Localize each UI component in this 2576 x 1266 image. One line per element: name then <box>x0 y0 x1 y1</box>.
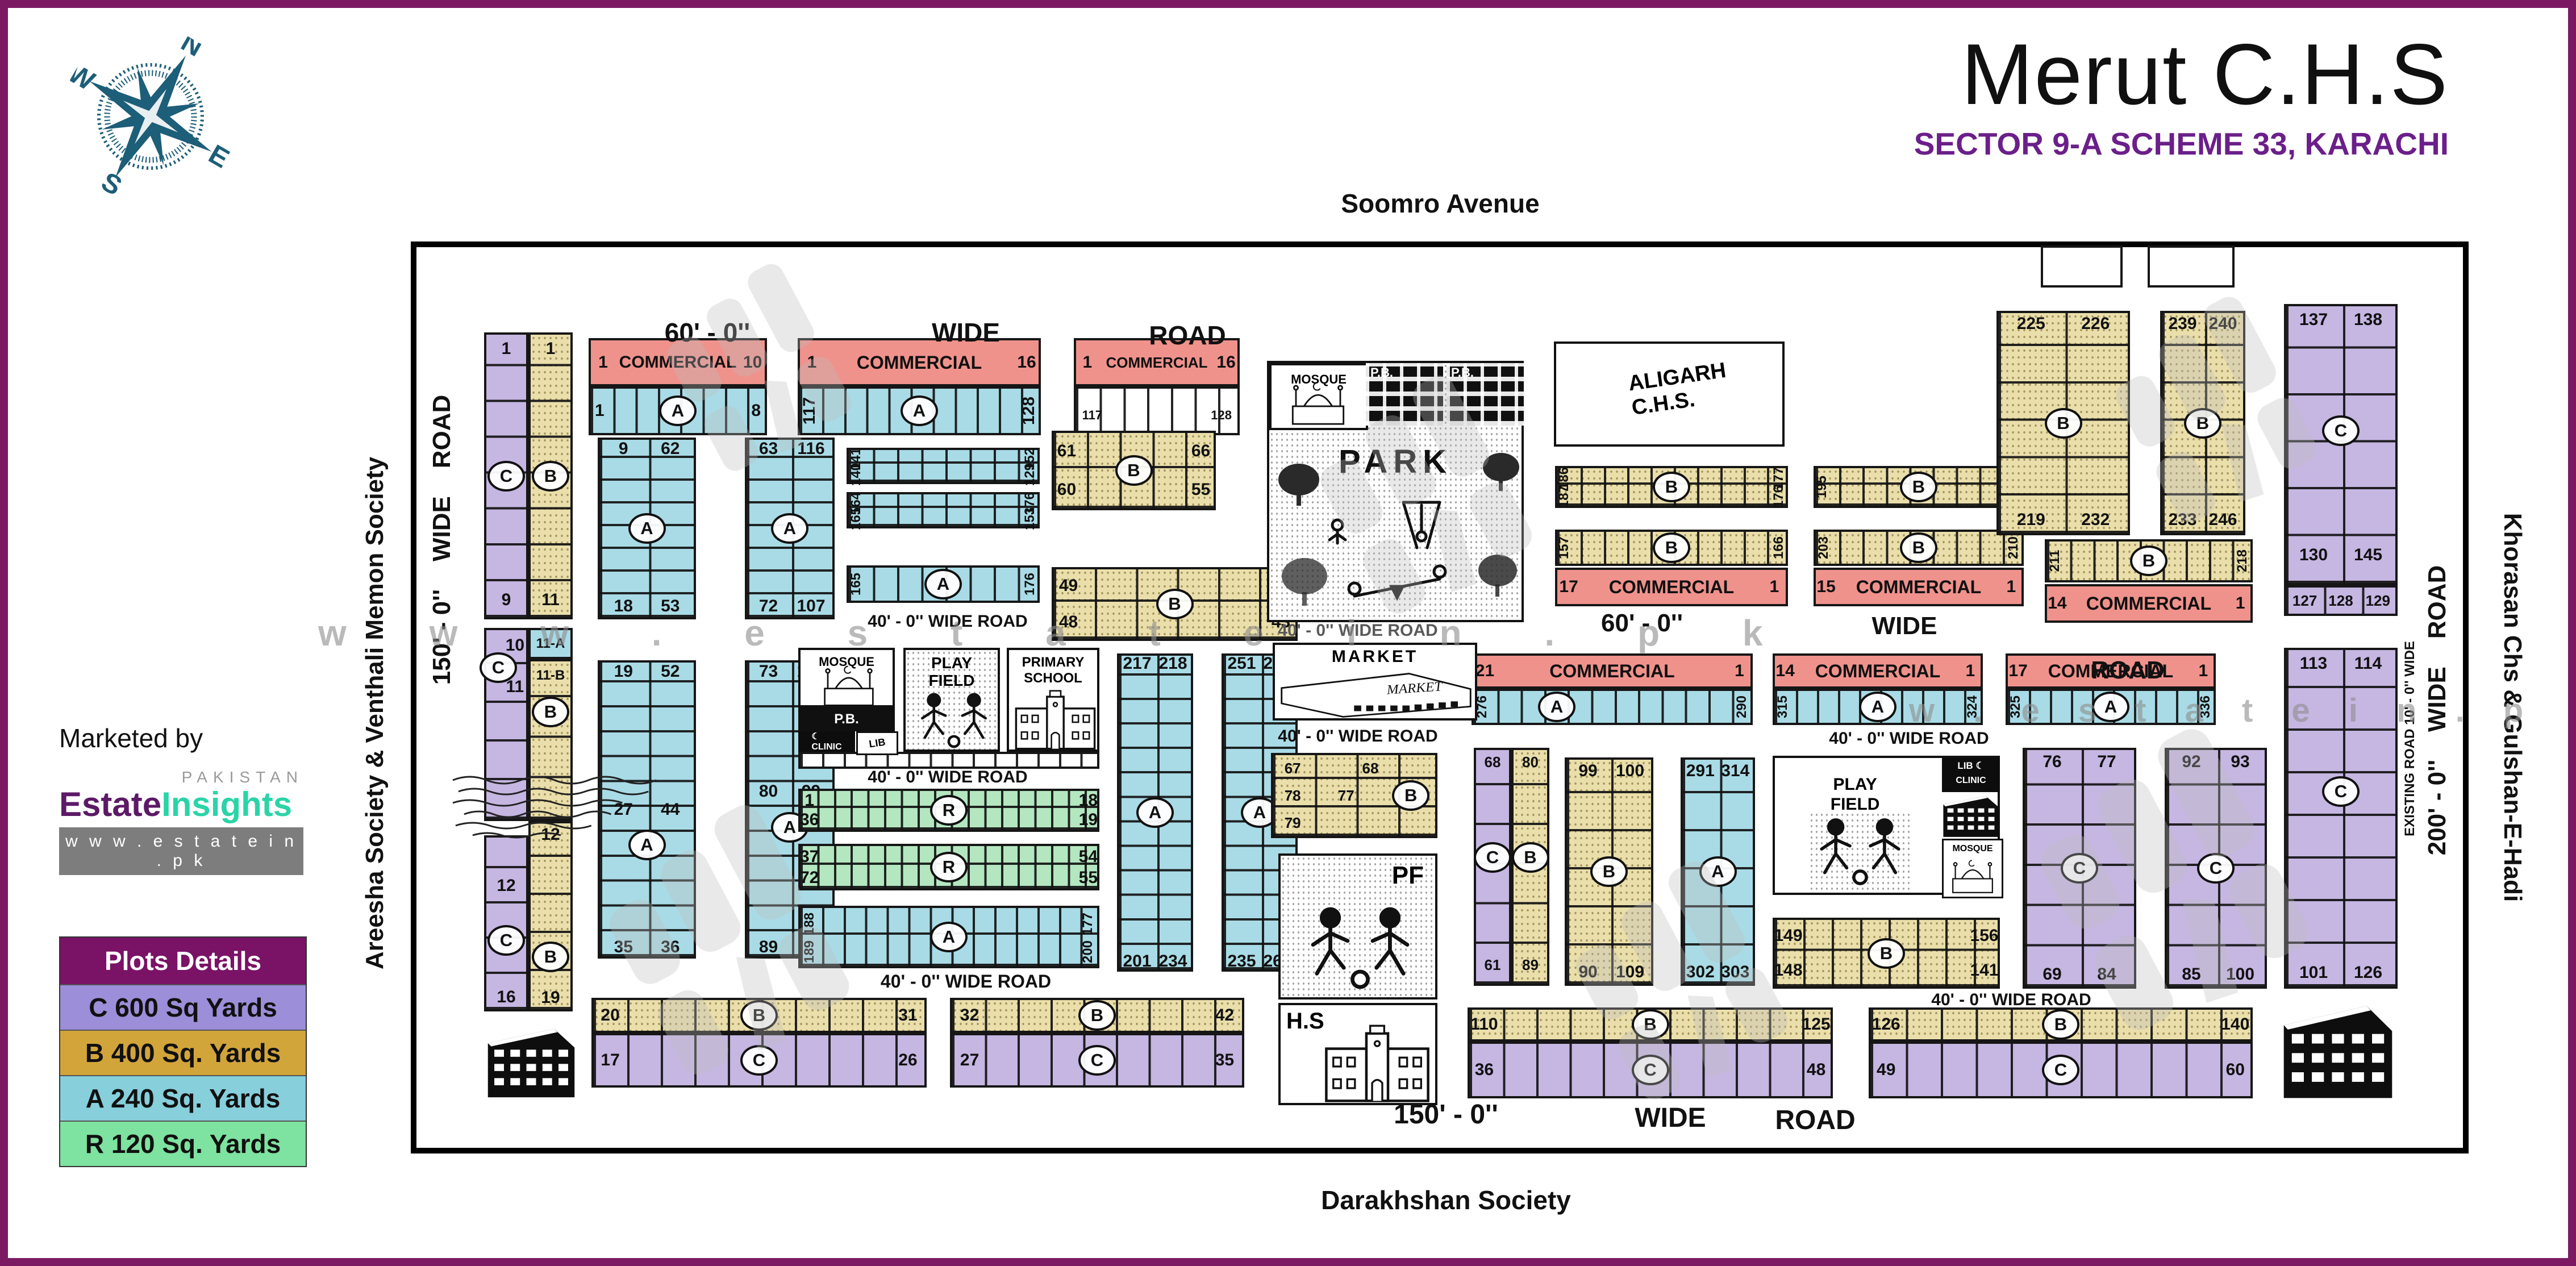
hs-label: H.S <box>1286 1009 1324 1034</box>
marketed-by-label: Marketed by <box>59 723 303 753</box>
plot-number: 12 <box>497 877 515 894</box>
plot-block-c: 6861C <box>1474 748 1511 986</box>
plot-block-b: 157166B <box>1555 530 1788 566</box>
school-label: PRIMARY SCHOOL <box>1011 655 1095 686</box>
clinic-box: ☾ CLINIC <box>798 731 855 752</box>
road-label: WIDE <box>1872 614 1937 639</box>
plot-number: 11 <box>506 678 524 696</box>
pb-label: P.B. <box>834 711 859 727</box>
plot-number: 126 <box>2354 964 2382 981</box>
terrain-contours <box>450 772 676 843</box>
plot-number: 18 <box>1079 792 1098 809</box>
road-label: ROAD <box>2091 658 2165 683</box>
legend-header: Plots Details <box>60 938 306 984</box>
building-icon <box>486 1025 577 1098</box>
brand-url: w w w . e s t a t e i n . p k <box>59 827 303 875</box>
plot-block-b: 3242B <box>950 998 1244 1033</box>
footballers-icon <box>1809 812 1911 892</box>
plot-number: 1 <box>1083 354 1093 371</box>
plot-category-badge-c: C <box>1078 1045 1116 1076</box>
plot-category-badge-r: R <box>930 795 968 826</box>
plot-number: 127 <box>2292 593 2317 608</box>
plot-number: 16 <box>497 989 515 1006</box>
label-soomro-avenue: Soomro Avenue <box>1341 188 1539 219</box>
plot-category-badge-b: B <box>1115 455 1153 486</box>
plot-number: 1 <box>595 402 605 419</box>
plot-block-a: 9621853A <box>598 438 696 619</box>
plot-category-badge-b: B <box>1900 472 1937 502</box>
plot-number: 78 <box>1285 788 1301 803</box>
plot-number: 291 <box>1686 763 1715 780</box>
footballers-icon <box>911 690 997 751</box>
plot-number: 52 <box>661 663 680 680</box>
plot-block-b: 1219B <box>528 821 573 1011</box>
plot-number: 129 <box>1023 463 1037 486</box>
plot-block-w <box>2148 245 2235 288</box>
legend-row: A 240 Sq. Yards <box>60 1075 306 1121</box>
label-areesha-society: Areesha Society & Venthali Memon Society <box>361 457 389 969</box>
plot-block-r: 1183619R <box>798 789 1099 832</box>
plot-number: COMMERCIAL <box>1609 578 1734 596</box>
landmark-pb: P.B. <box>798 707 895 731</box>
plot-block-com: 15COMMERCIAL1 <box>1814 568 2024 606</box>
mosque-icon <box>804 665 894 707</box>
road-label: 40' - 0'' WIDE ROAD <box>1931 992 2091 1009</box>
plot-number: COMMERCIAL <box>2086 594 2211 613</box>
plot-number: 232 <box>2081 511 2110 528</box>
plot-category-badge-a: A <box>1538 692 1575 722</box>
plot-number: 1 <box>805 792 814 809</box>
page-subtitle: SECTOR 9-A SCHEME 33, KARACHI <box>1914 126 2449 162</box>
footballers-icon <box>1298 901 1423 995</box>
aligarh-label: ALIGARH C.H.S. <box>1627 358 1734 420</box>
plot-number: 114 <box>2354 655 2382 672</box>
clinic-label: ☾ CLINIC <box>811 731 841 752</box>
brand-country: PAKISTAN <box>59 768 303 786</box>
road-label: 40' - 0'' WIDE ROAD <box>881 972 1051 990</box>
plot-block-b: 211218B <box>2045 539 2253 582</box>
plot-number: 16 <box>1216 354 1235 371</box>
plot-number: 73 <box>759 663 778 680</box>
mosque-icon <box>1275 381 1361 426</box>
road-label: WIDE <box>932 319 1000 345</box>
plot-category-badge-b: B <box>2045 408 2082 439</box>
plot-number: 225 <box>2017 315 2045 332</box>
plot-category-badge-b: B <box>532 697 569 727</box>
plot-number: 165 <box>849 573 863 595</box>
plot-number: 128 <box>1020 397 1037 425</box>
svg-text:W: W <box>62 57 99 96</box>
plot-category-badge-b: B <box>2130 545 2167 576</box>
plot-number: 99 <box>1578 763 1597 780</box>
plot-number: 1 <box>502 340 511 357</box>
plot-number: 218 <box>1158 655 1187 672</box>
plot-block-b: 6768787779B <box>1271 753 1437 838</box>
plot-number: 11 <box>541 592 560 609</box>
plot-category-badge-a: A <box>1859 692 1896 722</box>
plots-details-legend: Plots Details C 600 Sq YardsB 400 Sq. Ya… <box>59 936 307 1167</box>
plot-number: 54 <box>1079 848 1098 865</box>
plot-number: 89 <box>1522 957 1539 972</box>
building-icon <box>1942 793 2000 838</box>
plot-block-a: 276290A <box>1472 689 1753 725</box>
plot-number: 211 <box>2048 550 2062 572</box>
plot-number: 166 <box>1772 536 1786 559</box>
plot-block-com: 17COMMERCIAL1 <box>1555 568 1788 606</box>
plot-number: 9 <box>502 592 511 609</box>
plot-number: 314 <box>1721 763 1749 780</box>
plot-number: 31 <box>898 1007 917 1024</box>
plot-number: 1 <box>1735 663 1744 680</box>
plot-number: COMMERCIAL <box>1815 662 1940 680</box>
plot-number: 176 <box>1023 573 1037 595</box>
plot-number: COMMERCIAL <box>1549 662 1674 680</box>
plot-number: 276 <box>1475 696 1489 718</box>
plot-number: 20 <box>601 1007 619 1024</box>
road-label: ROAD <box>1149 322 1226 348</box>
plot-number: 55 <box>1191 481 1210 498</box>
brand-estate: Estate <box>59 785 161 823</box>
plot-number: 1 <box>598 354 608 371</box>
plot-category-badge-b: B <box>2042 1009 2079 1040</box>
plot-category-badge-a: A <box>930 922 968 952</box>
plot-number: 79 <box>1285 815 1301 830</box>
plot-category-badge-b: B <box>1653 472 1690 502</box>
plot-block-c: 2735C <box>950 1033 1244 1088</box>
plot-number: 1 <box>1770 578 1779 595</box>
plot-number: 77 <box>1338 788 1354 803</box>
plot-category-badge-b: B <box>1512 842 1549 873</box>
plot-number: 251 <box>1227 655 1256 672</box>
plot-number: 15 <box>1816 578 1835 595</box>
playfield-label: PLAY FIELD <box>1811 775 1900 814</box>
clinic-label: CLINIC <box>1956 776 1986 786</box>
plot-number: 128 <box>2328 593 2353 608</box>
plot-number: 1 <box>1966 663 1975 680</box>
plot-number: 1 <box>546 340 556 357</box>
plot-category-badge-a: A <box>901 395 938 426</box>
legend-row: R 120 Sq. Yards <box>60 1121 306 1166</box>
plot-category-badge-b: B <box>532 461 569 492</box>
plot-number: 165 <box>849 507 863 530</box>
plot-block-w <box>2041 245 2123 288</box>
plot-number: 110 <box>1470 1016 1498 1033</box>
plot-number: 67 <box>1285 761 1301 776</box>
plot-block-b: 61666055B <box>1052 431 1216 510</box>
page-title: Merut C.H.S <box>1914 27 2449 122</box>
plot-block-w: 117128 <box>1074 386 1240 435</box>
lib-box: LIB <box>856 731 898 755</box>
landmark-aligarh: ALIGARH C.H.S. <box>1554 342 1785 447</box>
plot-number: COMMERCIAL <box>1856 578 1981 596</box>
plot-number: COMMERCIAL <box>1106 355 1207 370</box>
plot-number: 42 <box>1215 1007 1234 1024</box>
plot-number: 62 <box>661 440 680 457</box>
landmark-cliniclib: ☾ CLINICLIB <box>798 731 895 752</box>
plot-category-badge-a: A <box>771 513 808 544</box>
plot-number: 219 <box>2017 511 2045 528</box>
plot-block-com: 14COMMERCIAL1 <box>1773 653 1983 689</box>
plot-number: 14 <box>2048 595 2066 612</box>
plot-category-badge-b: B <box>1653 532 1690 563</box>
pb-label: P.B. <box>1370 365 1393 380</box>
plot-number: 76 <box>2043 753 2061 771</box>
plot-number: 48 <box>1807 1061 1825 1078</box>
pf-label: PF <box>1392 861 1424 890</box>
plot-number: 61 <box>1485 957 1501 972</box>
landmark-mosque: MOSQUE <box>798 648 895 707</box>
plot-number: 1 <box>2236 595 2245 612</box>
landmark-hs: H.S <box>1278 1003 1437 1105</box>
plot-number: 177 <box>1081 913 1095 935</box>
plot-number: 35 <box>1215 1052 1234 1069</box>
watermark-text: w . e s t a t e i n . p <box>1909 694 2538 727</box>
plot-number: 66 <box>1191 443 1210 460</box>
plot-block-com: 21COMMERCIAL1 <box>1472 653 1753 689</box>
plot-number: 69 <box>2043 966 2061 983</box>
plot-number: 1 <box>2199 663 2208 680</box>
plot-block-com: 14COMMERCIAL1 <box>2045 584 2253 623</box>
road-label: ROAD <box>1775 1107 1855 1134</box>
plot-block-b: 149156148141B <box>1773 918 2000 989</box>
mosque-box: MOSQUE <box>1942 839 2003 898</box>
plot-number: 68 <box>1362 761 1379 776</box>
compass-rose-icon: N E S W <box>30 0 270 237</box>
plot-number: 210 <box>2007 536 2020 559</box>
brand-logo: EstateInsights <box>59 788 303 822</box>
plot-block-a: 141140152129 <box>847 448 1040 484</box>
lib-clinic-box: LIB ☾CLINIC <box>1942 758 2000 792</box>
plot-number: 19 <box>614 663 633 680</box>
plot-number: 137 <box>2299 311 2328 328</box>
plot-block-c: 127128129 <box>2284 585 2398 616</box>
school-building-icon <box>1014 690 1097 751</box>
plot-block-b: 203210B <box>1814 530 2024 566</box>
landmark-playfield: PLAY FIELD <box>903 648 1000 752</box>
plot-number: 128 <box>1211 409 1232 422</box>
lib-label: LIB <box>868 736 886 751</box>
mosque-label: MOSQUE <box>1952 844 1993 854</box>
plot-block-w <box>798 752 1099 769</box>
plot-number: 21 <box>1475 663 1494 680</box>
plot-number: 9 <box>619 440 628 457</box>
road-label: 40' - 0'' WIDE ROAD <box>868 769 1027 786</box>
plot-number: 138 <box>2354 311 2382 328</box>
brand-insights: Insights <box>161 785 292 823</box>
plot-number: 17 <box>2008 663 2027 680</box>
road-label: EXISTING ROAD 10' - 0'' WIDE <box>2403 641 2417 836</box>
plot-block-c: 4960C <box>1869 1042 2253 1098</box>
plot-block-a: 165176A <box>847 565 1040 603</box>
plot-block-r: 37547255R <box>798 844 1099 890</box>
plot-category-badge-c: C <box>487 925 525 956</box>
plot-number: 27 <box>960 1052 979 1069</box>
building-icon <box>2281 1000 2395 1100</box>
playfield-label: PLAY FIELD <box>910 655 993 690</box>
plot-number: 156 <box>1970 927 1998 944</box>
plot-block-b: 111B <box>528 332 573 619</box>
plot-number: 14 <box>1775 663 1794 680</box>
plot-number: 140 <box>2221 1016 2249 1033</box>
landmark-pf: PF <box>1278 853 1437 1000</box>
title-block: Merut C.H.S SECTOR 9-A SCHEME 33, KARACH… <box>1914 27 2449 162</box>
watermark-text: w w w . e s t a t e i n . p k <box>318 615 1799 651</box>
plot-number: 55 <box>1079 869 1098 886</box>
road-label: 40' - 0'' WIDE ROAD <box>1829 730 1989 747</box>
plot-number: 234 <box>1158 953 1187 970</box>
plot-number: 129 <box>2366 593 2390 608</box>
plot-number: 60 <box>2226 1061 2245 1078</box>
plot-number: 145 <box>2354 547 2382 564</box>
plot-number: 130 <box>2299 547 2328 564</box>
mosque-icon <box>1946 854 1999 894</box>
plot-number: 140 <box>849 463 863 486</box>
plot-category-badge-c: C <box>2042 1055 2079 1085</box>
landmark-playfield2: PLAY FIELDLIB ☾CLINICMOSQUE <box>1773 756 2000 895</box>
plot-block-c: 1216C <box>484 835 528 1011</box>
plot-number: 126 <box>1872 1016 1900 1033</box>
plot-number: 195 <box>1815 476 1829 498</box>
school-building-icon <box>1320 1025 1434 1104</box>
plot-number: 217 <box>1123 655 1151 672</box>
plot-number: 19 <box>1079 811 1098 828</box>
legend-row: C 600 Sq Yards <box>60 984 306 1030</box>
plot-number: 17 <box>601 1052 619 1069</box>
road-label: 150' - 0'' <box>1394 1101 1498 1128</box>
plot-number: 153 <box>1023 507 1037 530</box>
plot-number: COMMERCIAL <box>857 353 982 372</box>
plot-number: 235 <box>1227 953 1256 970</box>
plot-number: 60 <box>1057 481 1076 498</box>
plot-category-badge-c: C <box>487 461 525 492</box>
plot-block-a: 164165176153 <box>847 492 1040 528</box>
plot-category-badge-c: C <box>2322 776 2360 807</box>
plot-number: 80 <box>1522 755 1539 769</box>
plot-number: 187 <box>1557 485 1571 508</box>
plot-number: 16 <box>1017 354 1036 371</box>
plot-number: 49 <box>1059 577 1078 594</box>
plot-number: 36 <box>1475 1061 1494 1078</box>
playfield-icon-column: LIB ☾CLINICMOSQUE <box>1942 758 2000 895</box>
plot-category-badge-a: A <box>924 569 962 599</box>
plot-number: 26 <box>898 1052 917 1069</box>
svg-text:N: N <box>176 27 208 63</box>
plot-category-badge-b: B <box>1078 1000 1116 1031</box>
plot-number: 226 <box>2081 315 2110 332</box>
plot-number: 290 <box>1735 696 1749 718</box>
plot-number: 1 <box>2007 578 2016 595</box>
plot-category-badge-c: C <box>480 652 517 683</box>
plot-block-b: 186187177176B <box>1555 466 1788 508</box>
plot-number: 117 <box>1082 409 1103 422</box>
plot-number: 19 <box>541 989 560 1006</box>
landmark-market: MARKETMARKET <box>1273 643 1477 721</box>
plot-number: 113 <box>2300 655 2327 672</box>
plot-number: 176 <box>1772 485 1786 508</box>
legend-row: B 400 Sq. Yards <box>60 1030 306 1075</box>
plot-number: 68 <box>1485 755 1501 769</box>
plot-category-badge-b: B <box>1868 938 1905 969</box>
market-building-icon: MARKET <box>1277 665 1475 719</box>
plot-category-badge-r: R <box>930 852 968 882</box>
plot-number: 100 <box>1616 763 1644 780</box>
plot-category-badge-b: B <box>532 942 569 972</box>
plot-number: 17 <box>1559 578 1578 595</box>
plot-block-a: 217218201234A <box>1117 653 1193 972</box>
plot-block-b: 8089B <box>1511 748 1549 986</box>
plot-number: 218 <box>2236 549 2249 572</box>
plot-category-badge-b: B <box>1392 780 1429 811</box>
plot-number: 49 <box>1877 1061 1895 1078</box>
plot-block-b: 195194202B <box>1814 466 2024 508</box>
plot-number: 200 <box>1081 940 1095 963</box>
plot-number: 201 <box>1123 953 1151 970</box>
plot-block-c: 19C <box>484 332 528 619</box>
plot-number: 315 <box>1776 696 1790 718</box>
plot-category-badge-a: A <box>628 513 666 544</box>
plot-category-badge-b: B <box>1900 532 1937 563</box>
svg-text:E: E <box>203 139 234 174</box>
marketed-by-block: Marketed by PAKISTAN EstateInsights w w … <box>59 723 303 875</box>
label-darakhshan-society: Darakhshan Society <box>1321 1185 1571 1215</box>
svg-text:S: S <box>96 166 127 202</box>
plot-category-badge-c: C <box>1474 842 1511 873</box>
plot-number: 32 <box>960 1007 979 1024</box>
plot-number: 11-B <box>536 669 565 682</box>
plot-number: 141 <box>1970 962 1998 979</box>
landmark-school: PRIMARY SCHOOL <box>1007 648 1099 752</box>
plot-category-badge-a: A <box>1136 797 1174 828</box>
plot-category-badge-b: B <box>1590 856 1628 887</box>
plot-number: 61 <box>1057 443 1076 460</box>
road-label: 40' - 0'' WIDE ROAD <box>1278 728 1437 745</box>
plot-number: 203 <box>1817 536 1831 559</box>
lib-label: LIB ☾ <box>1957 760 1984 772</box>
